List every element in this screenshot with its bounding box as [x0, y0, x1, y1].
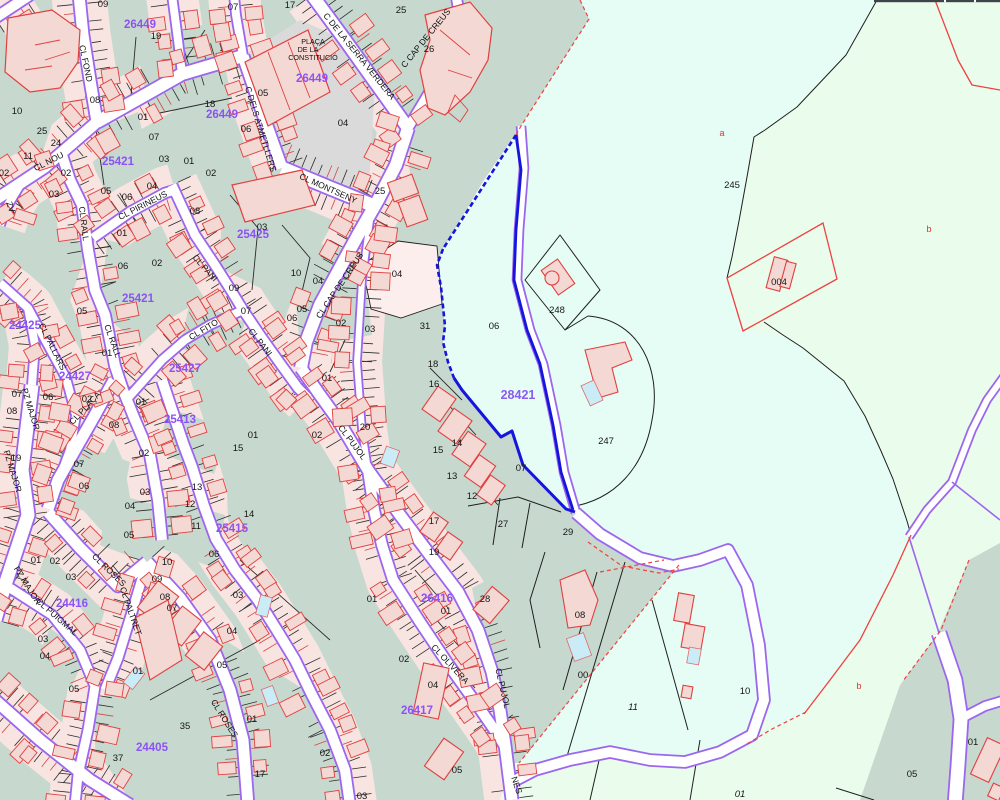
svg-text:08: 08 [7, 406, 18, 417]
svg-text:a: a [719, 128, 724, 138]
svg-text:03: 03 [365, 324, 376, 335]
svg-text:05: 05 [297, 304, 308, 315]
svg-text:11: 11 [191, 521, 201, 532]
svg-text:04: 04 [428, 680, 439, 691]
svg-text:12: 12 [467, 491, 478, 502]
svg-text:07: 07 [149, 132, 160, 143]
svg-text:01: 01 [138, 112, 149, 123]
svg-text:004: 004 [771, 277, 787, 288]
svg-text:16: 16 [429, 379, 440, 390]
svg-text:01: 01 [441, 606, 452, 617]
svg-text:20: 20 [360, 422, 371, 433]
svg-text:04: 04 [147, 181, 158, 192]
svg-text:05: 05 [101, 186, 112, 197]
svg-text:09: 09 [98, 0, 109, 10]
svg-text:05: 05 [258, 88, 269, 99]
svg-text:08: 08 [90, 95, 101, 106]
svg-text:27: 27 [498, 519, 509, 530]
svg-text:10: 10 [12, 106, 23, 117]
svg-text:17: 17 [429, 516, 440, 527]
svg-text:03: 03 [66, 572, 77, 583]
svg-text:18: 18 [428, 359, 439, 370]
svg-text:01: 01 [117, 228, 128, 239]
svg-text:06: 06 [287, 313, 298, 324]
svg-text:14: 14 [452, 438, 463, 449]
svg-text:05: 05 [69, 684, 80, 695]
svg-text:25421: 25421 [122, 293, 155, 305]
svg-text:19: 19 [11, 453, 22, 464]
svg-text:15: 15 [233, 443, 244, 454]
svg-text:26: 26 [424, 44, 435, 55]
svg-text:19: 19 [151, 31, 162, 42]
svg-text:03: 03 [357, 791, 368, 800]
svg-text:26417: 26417 [401, 705, 433, 717]
svg-text:28: 28 [480, 594, 491, 605]
svg-text:10: 10 [162, 557, 173, 568]
svg-text:13: 13 [192, 482, 203, 493]
svg-text:b: b [856, 681, 861, 691]
svg-text:01: 01 [248, 430, 259, 441]
svg-text:06: 06 [122, 192, 133, 203]
svg-text:06: 06 [79, 481, 90, 492]
svg-text:02: 02 [152, 258, 163, 269]
svg-text:12: 12 [185, 499, 196, 510]
svg-text:25421: 25421 [102, 156, 135, 168]
svg-text:06: 06 [489, 321, 500, 332]
svg-text:07: 07 [228, 2, 239, 13]
svg-text:02: 02 [206, 168, 217, 179]
svg-text:25: 25 [375, 186, 386, 197]
svg-text:02: 02 [312, 430, 323, 441]
svg-text:18: 18 [205, 99, 216, 110]
svg-text:11: 11 [23, 151, 33, 162]
svg-text:07: 07 [241, 306, 252, 317]
svg-text:00: 00 [578, 670, 589, 681]
svg-text:04: 04 [227, 626, 238, 637]
svg-text:06: 06 [43, 392, 54, 403]
svg-text:08: 08 [109, 420, 120, 431]
svg-text:03: 03 [49, 189, 60, 200]
svg-text:24425: 24425 [9, 320, 42, 332]
svg-text:25427: 25427 [169, 363, 201, 375]
svg-text:03: 03 [233, 590, 244, 601]
svg-text:07: 07 [167, 603, 178, 614]
svg-text:04: 04 [125, 501, 136, 512]
svg-text:01: 01 [247, 714, 258, 725]
svg-text:24: 24 [51, 138, 62, 149]
svg-text:28421: 28421 [501, 388, 536, 402]
svg-text:05: 05 [907, 769, 918, 780]
svg-text:05: 05 [217, 660, 228, 671]
svg-text:31: 31 [420, 321, 431, 332]
svg-text:25413: 25413 [164, 414, 196, 426]
svg-text:02: 02 [0, 168, 9, 179]
svg-text:01: 01 [968, 737, 979, 748]
svg-text:08: 08 [190, 206, 201, 217]
svg-text:09: 09 [152, 574, 163, 585]
svg-text:05: 05 [124, 530, 135, 541]
svg-text:02: 02 [336, 318, 347, 329]
svg-text:10: 10 [740, 686, 751, 697]
svg-text:02: 02 [320, 748, 331, 759]
svg-text:29: 29 [563, 527, 574, 538]
svg-text:09: 09 [229, 283, 240, 294]
svg-text:04: 04 [40, 651, 51, 662]
svg-text:11: 11 [628, 702, 638, 713]
svg-text:03: 03 [38, 634, 49, 645]
svg-text:01: 01 [367, 594, 378, 605]
svg-text:CONSTITUCIÓ: CONSTITUCIÓ [288, 53, 338, 62]
svg-text:10: 10 [291, 268, 302, 279]
svg-text:14: 14 [244, 509, 255, 520]
svg-text:05: 05 [77, 306, 88, 317]
svg-text:02: 02 [399, 654, 410, 665]
svg-text:07: 07 [74, 459, 85, 470]
svg-text:04: 04 [313, 276, 324, 287]
svg-text:19: 19 [429, 547, 440, 558]
svg-text:06: 06 [118, 261, 129, 272]
svg-text:01: 01 [31, 555, 42, 566]
svg-text:06: 06 [209, 549, 220, 560]
svg-text:25415: 25415 [216, 523, 249, 535]
svg-text:07: 07 [12, 389, 23, 400]
svg-text:01: 01 [322, 373, 333, 384]
svg-text:02: 02 [139, 448, 150, 459]
svg-text:01: 01 [136, 397, 147, 408]
svg-text:24427: 24427 [59, 371, 91, 383]
svg-text:02: 02 [82, 394, 93, 405]
svg-text:03: 03 [159, 154, 170, 165]
svg-text:24416: 24416 [56, 598, 88, 610]
svg-text:06: 06 [241, 124, 252, 135]
svg-text:02: 02 [50, 556, 61, 567]
svg-text:26449: 26449 [206, 109, 238, 121]
svg-text:17: 17 [285, 0, 296, 11]
svg-text:15: 15 [433, 445, 444, 456]
svg-text:247: 247 [598, 436, 614, 447]
svg-text:03: 03 [257, 222, 268, 233]
svg-text:26416: 26416 [421, 593, 453, 605]
svg-text:01: 01 [184, 156, 195, 167]
svg-text:26449: 26449 [296, 73, 328, 85]
svg-text:245: 245 [724, 180, 740, 191]
svg-text:37: 37 [113, 753, 124, 764]
svg-text:25: 25 [396, 5, 407, 16]
svg-text:24405: 24405 [136, 742, 169, 754]
svg-text:05: 05 [452, 765, 463, 776]
svg-text:02: 02 [61, 168, 72, 179]
svg-text:01: 01 [102, 348, 113, 359]
svg-text:04: 04 [392, 269, 403, 280]
svg-text:248: 248 [549, 305, 565, 316]
svg-text:b: b [926, 224, 931, 234]
svg-text:13: 13 [447, 471, 458, 482]
svg-text:01: 01 [735, 789, 746, 800]
svg-text:07: 07 [516, 463, 527, 474]
svg-text:26449: 26449 [124, 19, 156, 31]
svg-text:25: 25 [37, 126, 48, 137]
svg-text:04: 04 [338, 118, 349, 129]
svg-text:03: 03 [140, 487, 151, 498]
svg-text:08: 08 [575, 610, 586, 621]
svg-text:17: 17 [255, 769, 266, 780]
svg-text:01: 01 [133, 666, 144, 677]
svg-text:35: 35 [180, 721, 191, 732]
svg-text:08: 08 [160, 592, 171, 603]
